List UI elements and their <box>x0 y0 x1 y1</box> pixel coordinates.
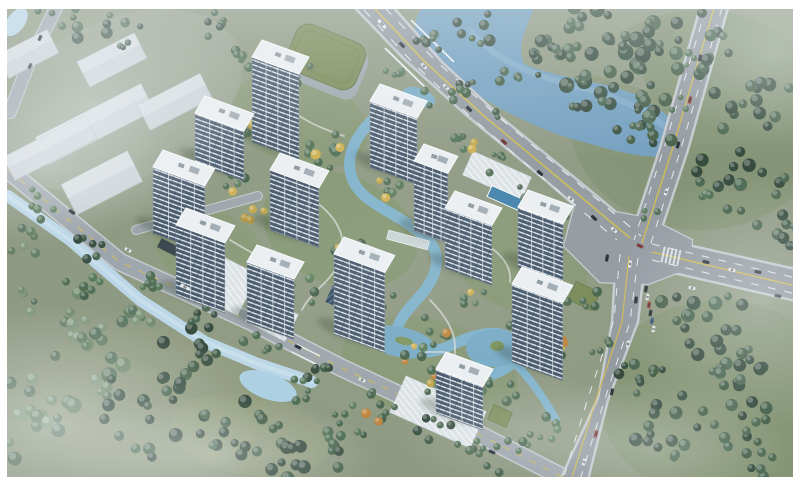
scene <box>0 0 800 485</box>
rendering-canvas <box>0 0 800 485</box>
aerial-rendering <box>0 0 800 485</box>
atmospheric-haze <box>0 0 800 485</box>
